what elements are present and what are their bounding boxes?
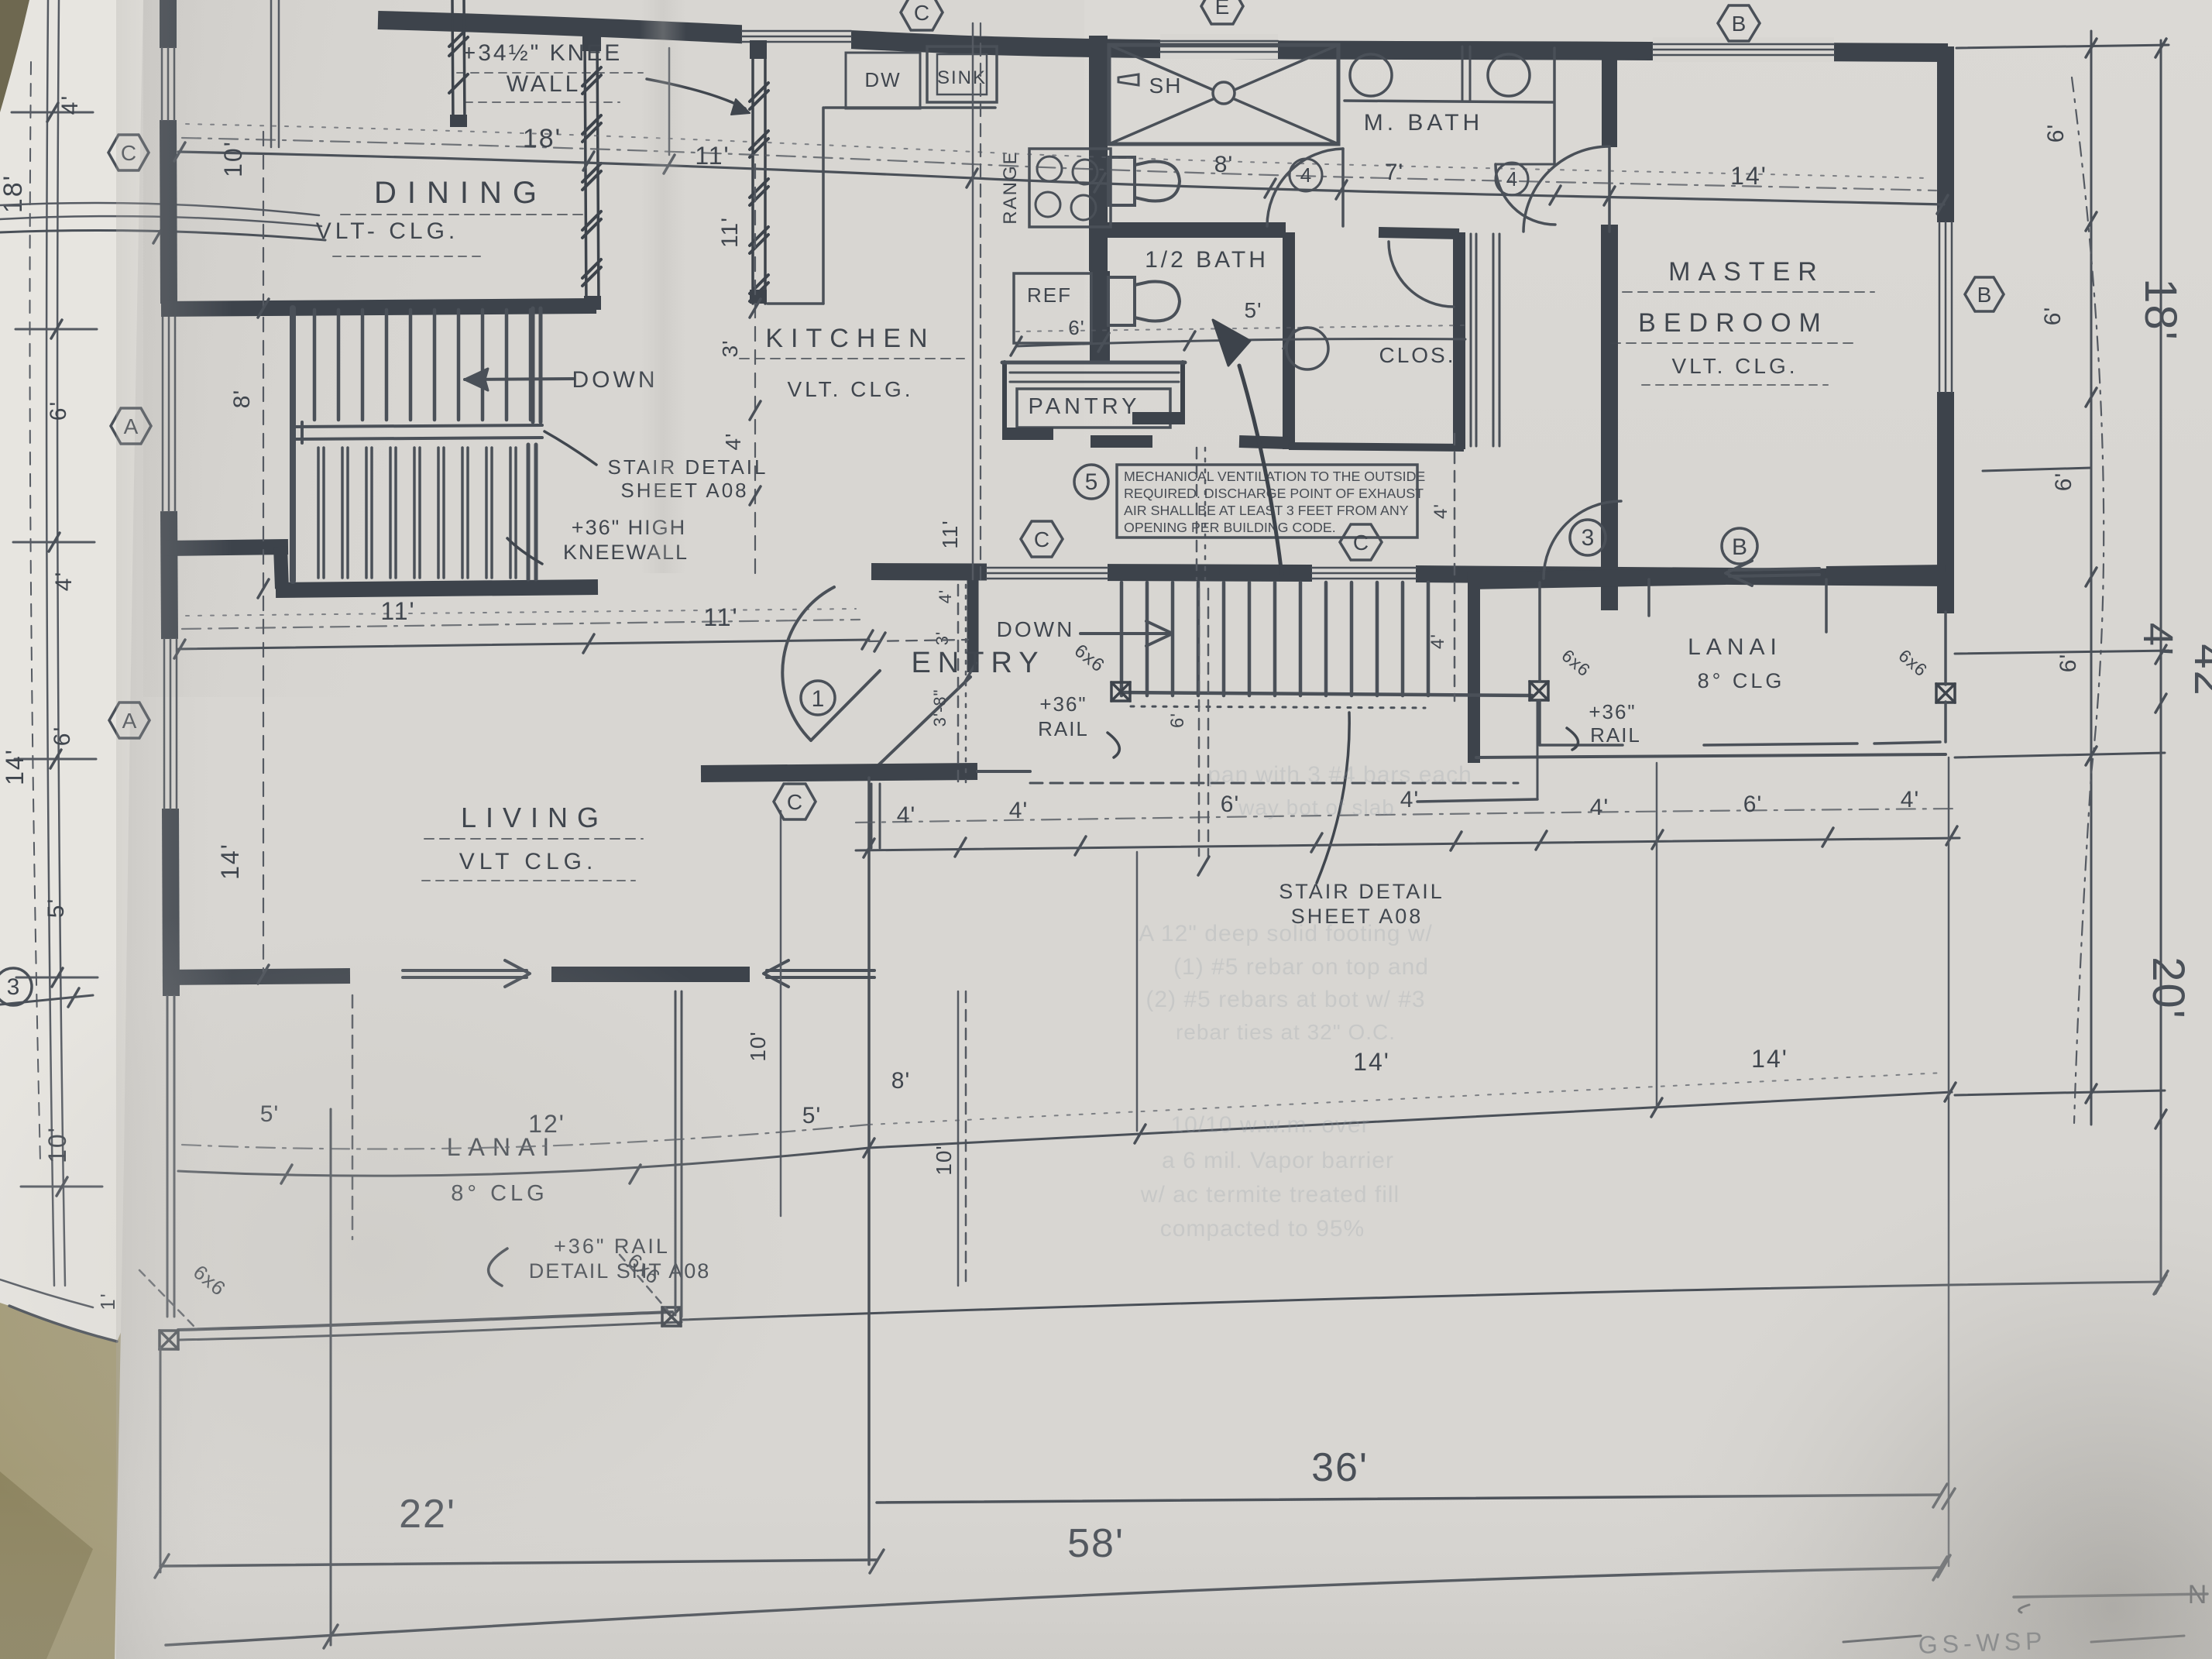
- svg-text:11': 11': [938, 520, 962, 548]
- svg-text:11': 11': [380, 597, 415, 625]
- svg-text:VLT. CLG.: VLT. CLG.: [787, 377, 913, 401]
- svg-text:1: 1: [812, 686, 825, 712]
- svg-text:RAIL: RAIL: [1038, 717, 1089, 740]
- svg-text:w/ ac termite treated fill: w/ ac termite treated fill: [1140, 1182, 1400, 1207]
- svg-text:+34½" KNEE: +34½" KNEE: [462, 40, 623, 66]
- svg-text:C: C: [1034, 527, 1049, 551]
- svg-text:1/2 BATH: 1/2 BATH: [1145, 247, 1269, 273]
- svg-text:3': 3': [933, 631, 952, 645]
- svg-text:B: B: [1977, 283, 1992, 307]
- svg-text:11': 11': [695, 142, 730, 170]
- svg-text:8': 8': [891, 1068, 910, 1094]
- svg-text:+36": +36": [1039, 692, 1087, 716]
- svg-text:14': 14': [1730, 162, 1767, 190]
- svg-text:+36": +36": [1589, 700, 1636, 723]
- svg-text:6': 6': [46, 400, 71, 421]
- svg-text:RANGE: RANGE: [1000, 150, 1021, 224]
- svg-text:6': 6': [1068, 316, 1084, 339]
- svg-text:rebar ties at 32" O.C.: rebar ties at 32" O.C.: [1176, 1020, 1396, 1044]
- svg-text:VLT CLG.: VLT CLG.: [459, 849, 598, 874]
- svg-text:6': 6': [1167, 713, 1188, 728]
- svg-text:10': 10': [932, 1145, 956, 1176]
- svg-text:a 6 mil. Vapor barrier: a 6 mil. Vapor barrier: [1162, 1148, 1394, 1173]
- svg-text:DINING: DINING: [374, 176, 548, 210]
- svg-text:4': 4': [51, 571, 77, 591]
- svg-text:6': 6': [50, 726, 75, 746]
- svg-text:4': 4': [897, 802, 915, 828]
- svg-text:RAIL: RAIL: [1590, 723, 1641, 747]
- svg-text:REQUIRED. DISCHARGE POINT OF: REQUIRED. DISCHARGE POINT OF EXHAUST: [1124, 486, 1424, 501]
- svg-text:7': 7': [1385, 160, 1403, 185]
- svg-text:14': 14': [1, 748, 29, 785]
- svg-text:5: 5: [1085, 469, 1098, 495]
- svg-text:STAIR DETAIL: STAIR DETAIL: [1279, 880, 1444, 903]
- svg-text:5': 5': [43, 898, 69, 918]
- svg-text:DW: DW: [864, 68, 901, 91]
- svg-text:18': 18': [2135, 278, 2186, 342]
- svg-text:3': 3': [718, 340, 742, 358]
- svg-text:WALL: WALL: [507, 71, 582, 97]
- svg-text:6': 6': [2056, 654, 2081, 672]
- svg-text:way bot of slab: way bot of slab: [1238, 795, 1395, 819]
- svg-text:M. BATH: M. BATH: [1364, 110, 1483, 136]
- svg-text:compacted to 95%: compacted to 95%: [1160, 1216, 1365, 1242]
- svg-text:E: E: [1215, 0, 1230, 19]
- svg-text:REF: REF: [1027, 283, 1072, 307]
- svg-text:6': 6': [2043, 124, 2069, 143]
- svg-text:BEDROOM: BEDROOM: [1638, 308, 1829, 338]
- svg-text:10/10 w.w.m. over: 10/10 w.w.m. over: [1170, 1112, 1369, 1138]
- svg-text:4': 4': [2135, 623, 2181, 657]
- svg-text:4': 4': [1901, 787, 1919, 812]
- svg-text:4': 4': [1431, 503, 1451, 519]
- svg-text:C: C: [787, 790, 802, 814]
- svg-text:6': 6': [2040, 307, 2066, 325]
- svg-text:8': 8': [229, 390, 255, 408]
- svg-text:14': 14': [1353, 1048, 1390, 1076]
- svg-text:CLOS.: CLOS.: [1379, 343, 1455, 367]
- svg-text:STAIR DETAIL: STAIR DETAIL: [608, 455, 768, 479]
- svg-text:A 12" deep solid footing w/: A 12" deep solid footing w/: [1139, 921, 1433, 946]
- svg-text:4': 4': [57, 94, 83, 115]
- svg-text:MECHANICAL VENTILATION TO THE: MECHANICAL VENTILATION TO THE OUTSIDE: [1124, 469, 1425, 484]
- svg-text:KITCHEN: KITCHEN: [765, 324, 935, 353]
- svg-text:LANAI: LANAI: [1688, 634, 1782, 660]
- svg-text:42': 42': [2185, 644, 2212, 707]
- svg-text:4: 4: [1300, 163, 1311, 187]
- svg-text:8': 8': [1214, 152, 1233, 177]
- svg-text:3: 3: [1582, 525, 1595, 551]
- svg-text:4': 4': [1009, 798, 1028, 823]
- svg-text:18': 18': [523, 124, 562, 153]
- svg-text:4': 4': [1427, 634, 1448, 649]
- svg-text:OPENING PER BUILDING CODE.: OPENING PER BUILDING CODE.: [1124, 520, 1336, 535]
- svg-text:4': 4': [721, 433, 745, 451]
- svg-text:11': 11': [703, 603, 738, 631]
- svg-text:6': 6': [1221, 792, 1239, 817]
- svg-text:8° CLG: 8° CLG: [1698, 669, 1785, 692]
- svg-text:ENTRY: ENTRY: [911, 647, 1045, 679]
- svg-text:C: C: [1353, 531, 1369, 555]
- svg-text:3: 3: [7, 974, 20, 1000]
- svg-text:C: C: [914, 1, 929, 25]
- svg-text:DOWN: DOWN: [997, 617, 1075, 641]
- svg-text:pan with 3 #4 bars each: pan with 3 #4 bars each: [1207, 762, 1472, 788]
- svg-text:B: B: [1732, 534, 1747, 560]
- svg-text:AIR SHALL BE AT LEAST 3 FEET F: AIR SHALL BE AT LEAST 3 FEET FROM ANY: [1124, 503, 1409, 518]
- svg-text:VLT- CLG.: VLT- CLG.: [316, 218, 459, 244]
- svg-text:4': 4': [1590, 795, 1609, 820]
- svg-text:6': 6': [1743, 792, 1762, 817]
- svg-text:4': 4': [1400, 787, 1419, 812]
- svg-text:PANTRY: PANTRY: [1029, 394, 1141, 419]
- svg-text:MASTER: MASTER: [1668, 257, 1825, 287]
- svg-text:VLT. CLG.: VLT. CLG.: [1671, 354, 1798, 378]
- svg-text:B: B: [1732, 12, 1747, 36]
- svg-text:4': 4': [936, 589, 955, 603]
- svg-text:LIVING: LIVING: [461, 802, 608, 833]
- svg-text:(1) #5 rebar on top and: (1) #5 rebar on top and: [1173, 954, 1429, 980]
- svg-text:SH: SH: [1149, 74, 1183, 98]
- svg-text:6': 6': [2051, 472, 2076, 491]
- svg-text:4: 4: [1506, 167, 1517, 191]
- svg-text:(2) #5 rebars at bot w/ #3: (2) #5 rebars at bot w/ #3: [1145, 987, 1425, 1012]
- svg-text:SINK: SINK: [937, 67, 987, 88]
- svg-text:11': 11': [717, 217, 743, 248]
- svg-text:5': 5': [1245, 298, 1262, 322]
- svg-text:18': 18': [0, 174, 28, 213]
- svg-text:3'-8": 3'-8": [930, 689, 950, 727]
